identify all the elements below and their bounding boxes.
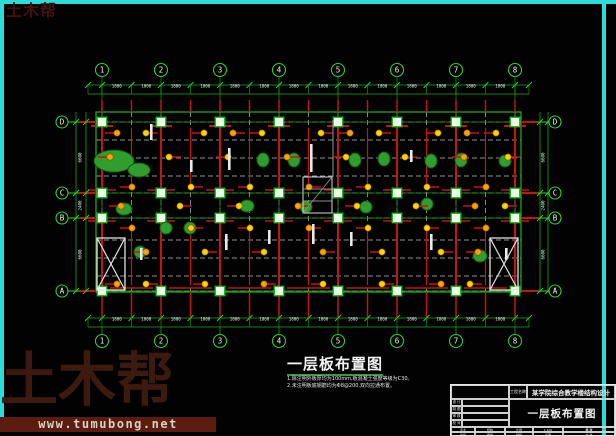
svg-text:6600: 6600: [541, 152, 546, 163]
svg-text:2400: 2400: [541, 200, 546, 211]
svg-text:2: 2: [159, 337, 164, 346]
svg-text:1800: 1800: [171, 84, 182, 89]
svg-text:1800: 1800: [200, 84, 211, 89]
svg-text:4: 4: [277, 66, 282, 75]
svg-text:1: 1: [100, 337, 105, 346]
svg-text:1800: 1800: [348, 84, 359, 89]
svg-text:1800: 1800: [141, 84, 152, 89]
titleblock-row-label: 设 计: [451, 399, 462, 406]
svg-text:D: D: [553, 118, 558, 127]
titleblock-b2: 结施: [505, 432, 533, 436]
svg-text:C: C: [553, 189, 558, 198]
svg-text:1800: 1800: [112, 84, 123, 89]
svg-text:3: 3: [218, 337, 223, 346]
svg-text:1: 1: [100, 66, 105, 75]
svg-text:6600: 6600: [78, 152, 83, 163]
svg-text:1800: 1800: [377, 317, 388, 322]
svg-text:1800: 1800: [318, 84, 329, 89]
svg-text:1800: 1800: [289, 317, 300, 322]
svg-text:D: D: [60, 118, 65, 127]
drawing-note-1: 1.除注明外板厚均为100mm,板混凝土强度等级为C30。: [287, 376, 487, 384]
cad-sheet: 1800180018001800180018001800180018001800…: [0, 0, 616, 436]
svg-text:1800: 1800: [141, 317, 152, 322]
svg-text:1800: 1800: [171, 317, 182, 322]
svg-text:1800: 1800: [259, 84, 270, 89]
titleblock-row-label: 校 对: [451, 420, 462, 427]
svg-text:6: 6: [395, 66, 400, 75]
titleblock-b2: 共 张: [563, 432, 615, 436]
svg-text:1800: 1800: [112, 317, 123, 322]
svg-text:1800: 1800: [230, 84, 241, 89]
svg-text:5: 5: [336, 66, 341, 75]
titleblock-row-value: [462, 413, 509, 420]
svg-text:1800: 1800: [200, 317, 211, 322]
titleblock-drawing-name: 一层板布置图: [509, 399, 615, 427]
titleblock-b2: 日期: [533, 432, 563, 436]
svg-text:6600: 6600: [541, 249, 546, 260]
svg-text:1800: 1800: [259, 317, 270, 322]
site-logo-small: 土木帮: [6, 3, 57, 19]
watermark-brand: 土木帮: [0, 350, 174, 411]
svg-text:4: 4: [277, 337, 282, 346]
titleblock-row-label: 审 核: [451, 413, 462, 420]
titleblock-empty-cell: [451, 385, 509, 399]
svg-text:1800: 1800: [466, 317, 477, 322]
svg-text:1800: 1800: [407, 317, 418, 322]
title-block: 工程名称 某学院综合教学楼结构设计 设 计 制 图 审 核 校 对 一层板布置图…: [450, 384, 616, 436]
svg-text:2400: 2400: [78, 200, 83, 211]
svg-text:2: 2: [159, 66, 164, 75]
svg-text:1800: 1800: [495, 317, 506, 322]
svg-text:1800: 1800: [348, 317, 359, 322]
svg-text:7: 7: [454, 337, 459, 346]
svg-text:6600: 6600: [78, 249, 83, 260]
svg-text:6: 6: [395, 337, 400, 346]
svg-text:A: A: [553, 287, 558, 296]
titleblock-project-name: 某学院综合教学楼结构设计: [527, 385, 615, 399]
svg-text:3: 3: [218, 66, 223, 75]
svg-text:B: B: [553, 214, 558, 223]
svg-text:8: 8: [513, 66, 518, 75]
svg-text:1800: 1800: [436, 84, 447, 89]
titleblock-b2: 图号: [475, 432, 505, 436]
svg-text:1800: 1800: [377, 84, 388, 89]
svg-text:B: B: [60, 214, 65, 223]
svg-text:C: C: [60, 189, 65, 198]
titleblock-project-label: 工程名称: [509, 385, 527, 399]
svg-text:1800: 1800: [289, 84, 300, 89]
drawing-title: 一层板布置图: [287, 356, 383, 376]
svg-text:1800: 1800: [230, 317, 241, 322]
titleblock-row-label: 制 图: [451, 406, 462, 413]
titleblock-row-value: [462, 420, 509, 427]
svg-text:1800: 1800: [495, 84, 506, 89]
svg-text:A: A: [60, 287, 65, 296]
svg-text:7: 7: [454, 66, 459, 75]
titleblock-row-value: [462, 406, 509, 413]
svg-text:1800: 1800: [318, 317, 329, 322]
titleblock-b2: 班级: [451, 432, 475, 436]
titleblock-row-value: [462, 399, 509, 406]
svg-text:1800: 1800: [407, 84, 418, 89]
svg-text:8: 8: [513, 337, 518, 346]
svg-text:1800: 1800: [436, 317, 447, 322]
svg-text:5: 5: [336, 337, 341, 346]
svg-text:1800: 1800: [466, 84, 477, 89]
watermark-url: www.tumubong.net: [0, 417, 216, 432]
